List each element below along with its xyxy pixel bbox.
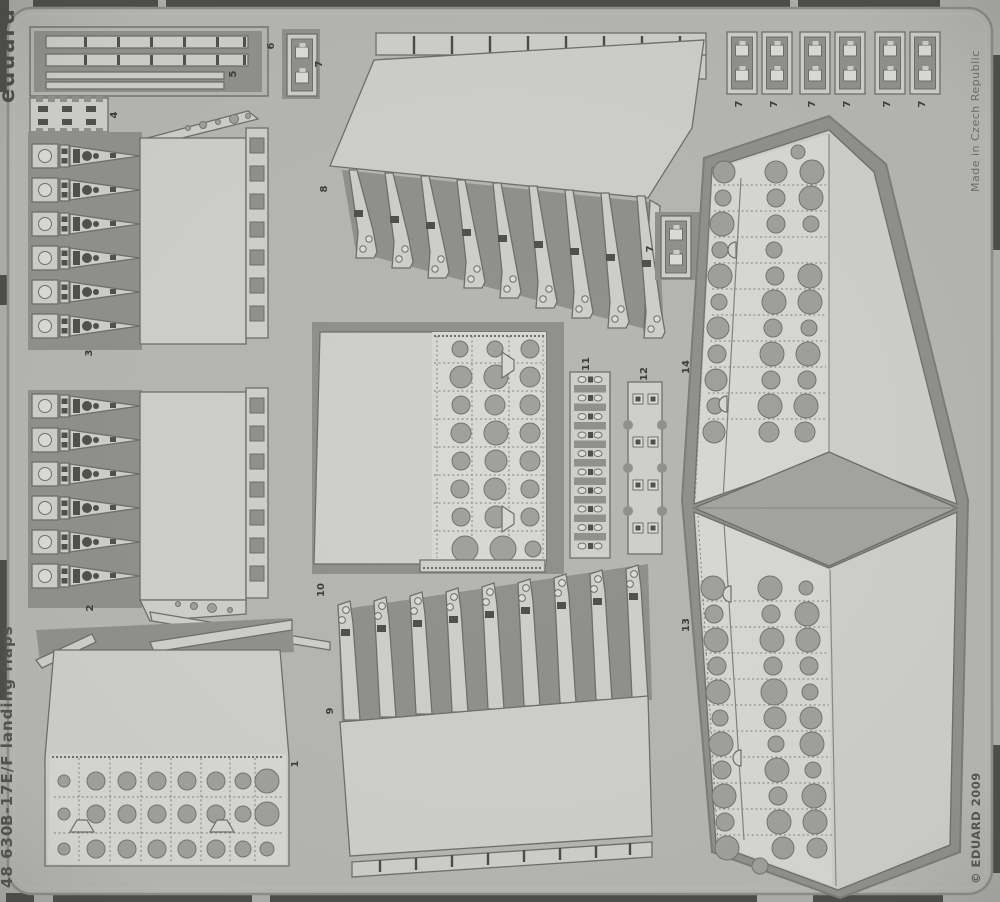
photo-etch-fret-photo: 1 2 3 4 5 6 7 7 7 7 7 7 7 7 8 9 10 11 12… (0, 0, 1000, 902)
part-label-4: 4 (109, 111, 120, 118)
set-title-text: B-17E/F landing flaps (0, 625, 16, 826)
part-label-7f: 7 (842, 100, 853, 107)
part-label-7c: 7 (734, 100, 745, 107)
part-label-9: 9 (325, 707, 336, 714)
part-label-7b: 7 (645, 245, 656, 252)
copyright-text: © EDUARD 2009 (969, 772, 983, 884)
part-label-3: 3 (84, 349, 95, 356)
part-label-12: 12 (639, 367, 650, 381)
part-label-7e: 7 (807, 100, 818, 107)
part-4-castellated-plate (30, 96, 108, 134)
part-label-5: 5 (228, 70, 239, 77)
part-label-7a: 7 (314, 60, 325, 67)
part-label-6: 6 (266, 42, 277, 49)
part-label-14: 14 (681, 360, 692, 374)
part-label-10: 10 (316, 583, 327, 597)
set-number-text: 48 630 (0, 825, 16, 888)
part-label-11: 11 (581, 357, 592, 371)
part-3-flap-section (28, 111, 268, 350)
made-in-text: Made in Czech Republic (969, 50, 982, 192)
part-label-7d: 7 (769, 100, 780, 107)
part-1-flap-section (36, 618, 294, 866)
part-11-hinge-strip (570, 372, 610, 558)
part-label-2: 2 (85, 604, 96, 611)
part-10-flap-section (312, 322, 564, 574)
part-9-flap-skin (338, 564, 652, 877)
part-label-8: 8 (319, 185, 330, 192)
part-label-13: 13 (681, 618, 692, 632)
part-strips-5-6 (30, 27, 268, 96)
brand-logo: eduard (0, 7, 19, 103)
part-label-7h: 7 (917, 100, 928, 107)
part-label-1: 1 (290, 760, 301, 767)
part-12-hinge-strip (623, 382, 667, 554)
part-label-7g: 7 (882, 100, 893, 107)
